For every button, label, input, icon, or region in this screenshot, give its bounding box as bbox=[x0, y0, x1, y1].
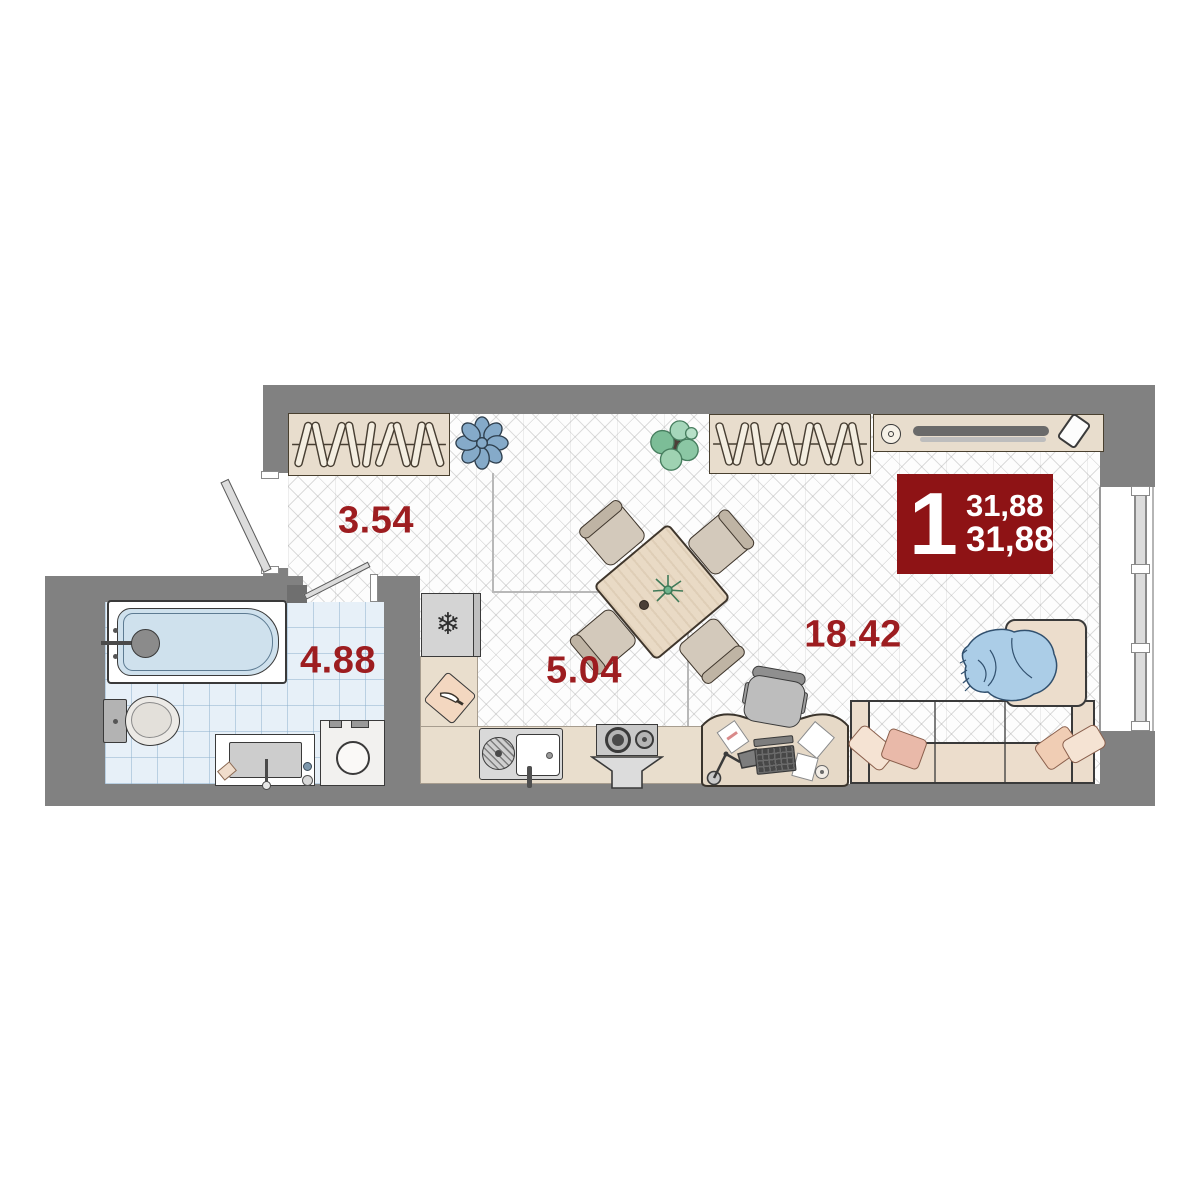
pouf bbox=[454, 415, 510, 471]
soap-dot bbox=[303, 762, 312, 771]
sofa-cushion-divider bbox=[1004, 702, 1006, 782]
dish-rack-icon bbox=[482, 737, 515, 770]
pouf-flower-icon bbox=[454, 415, 510, 471]
soap-dot bbox=[302, 775, 313, 786]
speaker-center-icon bbox=[888, 431, 894, 437]
office-chair-seat bbox=[742, 673, 807, 729]
fridge: ❄ bbox=[421, 593, 481, 657]
wall-kitchen-divider bbox=[384, 576, 420, 784]
entrance-door-leaf bbox=[220, 479, 271, 573]
window-inner-face-line bbox=[1099, 487, 1101, 731]
window-mullion bbox=[1131, 721, 1150, 731]
wardrobe-hallway bbox=[288, 413, 450, 476]
toilet-seat-ring bbox=[131, 702, 172, 738]
rooms-count: 1 bbox=[909, 487, 958, 562]
potted-plant bbox=[645, 417, 703, 475]
fridge-door-strip bbox=[473, 594, 480, 656]
kitchen-sink-unit bbox=[479, 728, 563, 780]
hanger-rail-icon bbox=[710, 415, 870, 473]
sofa-cushion-divider bbox=[934, 702, 936, 782]
floor-plan-canvas: 1 31,88 31,88 ❄ bbox=[0, 0, 1200, 1200]
bathtub bbox=[107, 600, 287, 684]
area-label-living-room: 18.42 bbox=[804, 614, 902, 657]
bathtub-faucet-icon bbox=[131, 629, 160, 658]
table-plant-icon bbox=[649, 571, 687, 609]
tv-stand-shadow bbox=[920, 437, 1046, 442]
area-label-bathroom: 4.88 bbox=[300, 640, 376, 683]
speaker-icon bbox=[881, 424, 901, 444]
plant-icon bbox=[645, 417, 703, 475]
tv-console bbox=[873, 414, 1104, 452]
stove bbox=[596, 724, 658, 756]
vanity-faucet-knob bbox=[262, 781, 271, 790]
extractor-hood bbox=[590, 756, 664, 790]
bathroom-vanity bbox=[215, 734, 315, 786]
area-living: 31,88 bbox=[966, 522, 1054, 558]
washer-control bbox=[351, 720, 369, 728]
burner-large-icon bbox=[605, 727, 631, 753]
window-outer-edge-line bbox=[1152, 487, 1154, 731]
wall-bathroom-top-left bbox=[45, 576, 303, 602]
wall-top bbox=[263, 385, 1155, 414]
cup-icon bbox=[815, 765, 829, 779]
wardrobe-living bbox=[709, 414, 871, 474]
wall-hall-left-upper bbox=[263, 414, 288, 473]
window-mullion bbox=[1131, 486, 1150, 496]
window-mullion bbox=[1131, 564, 1150, 574]
area-label-hallway: 3.54 bbox=[338, 500, 414, 543]
washing-machine bbox=[320, 720, 385, 786]
bathroom-door-jamb-right bbox=[370, 574, 378, 602]
snowflake-icon: ❄ bbox=[422, 594, 474, 654]
window-frame bbox=[1134, 487, 1147, 731]
entrance-door-jamb-top bbox=[261, 471, 279, 479]
apartment-info-badge: 1 31,88 31,88 bbox=[897, 474, 1053, 574]
wall-right-upper bbox=[1100, 385, 1155, 487]
area-label-kitchen: 5.04 bbox=[546, 650, 622, 693]
table-bowl-icon bbox=[639, 600, 649, 610]
toilet-tank bbox=[103, 699, 127, 743]
sink-basin bbox=[516, 734, 560, 776]
washer-control bbox=[329, 720, 342, 728]
window-mullion bbox=[1131, 643, 1150, 653]
tv-icon bbox=[913, 426, 1049, 436]
wall-bathroom-left bbox=[45, 576, 105, 806]
sink-faucet bbox=[527, 766, 532, 788]
burner-small-icon bbox=[635, 730, 654, 749]
hanger-rail-icon bbox=[289, 414, 449, 475]
tablet-icon bbox=[1056, 412, 1091, 449]
blanket bbox=[950, 620, 1066, 706]
sink-drain-icon bbox=[546, 752, 553, 759]
washer-drum-icon bbox=[336, 741, 370, 775]
laptop-icon bbox=[753, 735, 797, 777]
area-total: 31,88 bbox=[966, 490, 1054, 522]
office-chair bbox=[739, 664, 810, 732]
zone-line-hall-living bbox=[492, 473, 494, 592]
